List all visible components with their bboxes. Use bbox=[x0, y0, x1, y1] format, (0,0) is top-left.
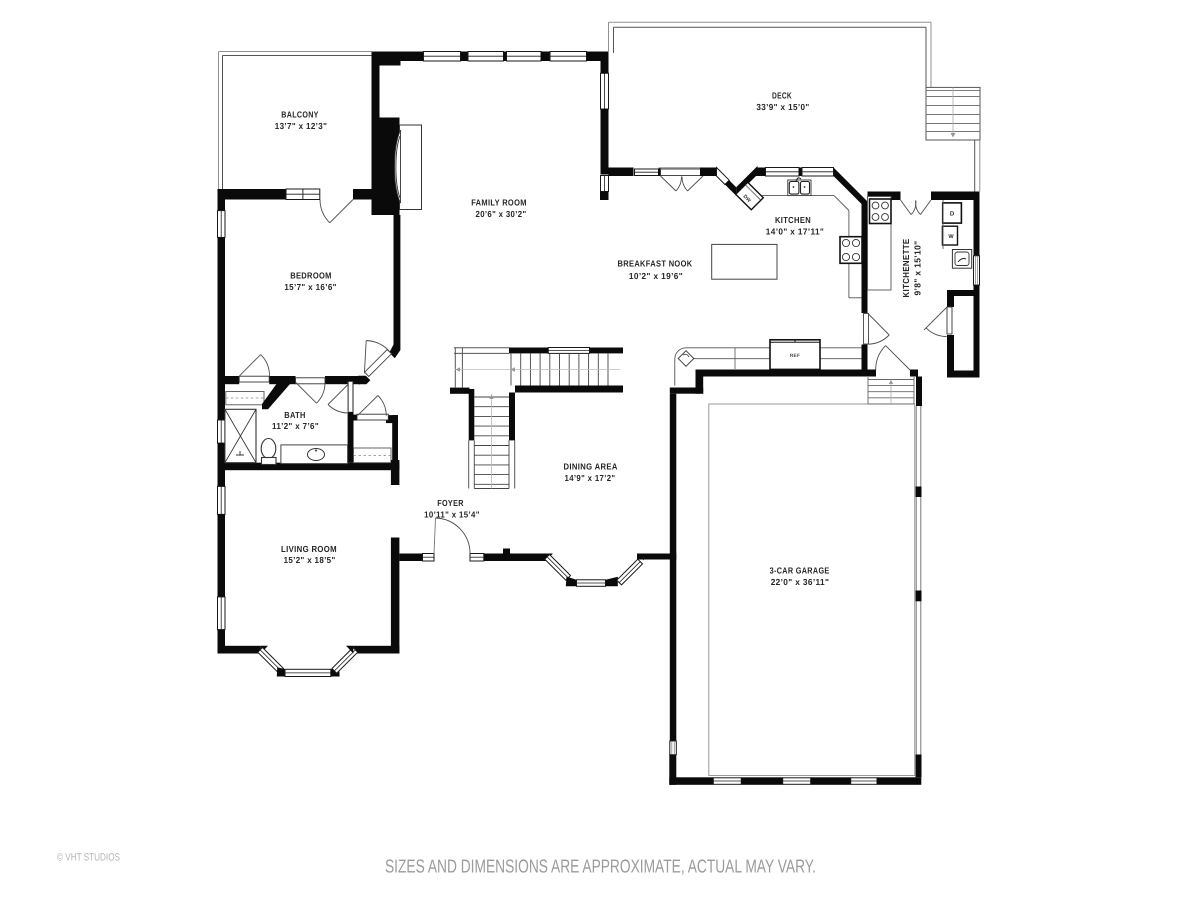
svg-text:14’9" x 17’2": 14’9" x 17’2" bbox=[565, 473, 616, 483]
svg-text:FOYER: FOYER bbox=[437, 498, 464, 508]
svg-text:15’7" x 16’6": 15’7" x 16’6" bbox=[284, 282, 337, 292]
svg-text:REF: REF bbox=[790, 353, 800, 359]
svg-text:DINING AREA: DINING AREA bbox=[564, 461, 618, 471]
svg-text:BEDROOM: BEDROOM bbox=[290, 270, 332, 280]
svg-text:BATH: BATH bbox=[284, 410, 305, 420]
svg-text:W: W bbox=[948, 234, 954, 240]
svg-text:BREAKFAST NOOK: BREAKFAST NOOK bbox=[618, 259, 693, 269]
svg-text:33’9" x 15’0": 33’9" x 15’0" bbox=[756, 102, 809, 112]
svg-text:LIVING ROOM: LIVING ROOM bbox=[281, 544, 337, 554]
svg-text:DECK: DECK bbox=[772, 91, 792, 101]
svg-text:20’6" x 30’2": 20’6" x 30’2" bbox=[476, 209, 527, 219]
svg-text:14’0" x 17’11": 14’0" x 17’11" bbox=[766, 227, 824, 237]
svg-text:10’11" x 15’4": 10’11" x 15’4" bbox=[424, 510, 480, 520]
svg-text:10’2" x 19’6": 10’2" x 19’6" bbox=[629, 271, 683, 281]
svg-text:D: D bbox=[950, 211, 955, 218]
svg-text:22’0" x 36’11": 22’0" x 36’11" bbox=[771, 577, 830, 587]
svg-text:KITCHENETTE: KITCHENETTE bbox=[901, 239, 911, 298]
svg-text:9’8" x 15’10": 9’8" x 15’10" bbox=[913, 241, 923, 296]
svg-text:FAMILY ROOM: FAMILY ROOM bbox=[471, 198, 527, 208]
svg-text:© VHT STUDIOS: © VHT STUDIOS bbox=[57, 852, 120, 864]
svg-text:SIZES AND DIMENSIONS ARE APPRO: SIZES AND DIMENSIONS ARE APPROXIMATE, AC… bbox=[385, 856, 816, 877]
svg-text:13’7" x 12’3": 13’7" x 12’3" bbox=[275, 121, 328, 131]
svg-text:KITCHEN: KITCHEN bbox=[775, 215, 811, 225]
svg-text:BALCONY: BALCONY bbox=[281, 110, 319, 120]
svg-text:11’2" x 7’6": 11’2" x 7’6" bbox=[272, 421, 319, 431]
svg-text:15’2" x 18’5": 15’2" x 18’5" bbox=[284, 555, 336, 565]
svg-text:3-CAR GARAGE: 3-CAR GARAGE bbox=[770, 566, 830, 576]
